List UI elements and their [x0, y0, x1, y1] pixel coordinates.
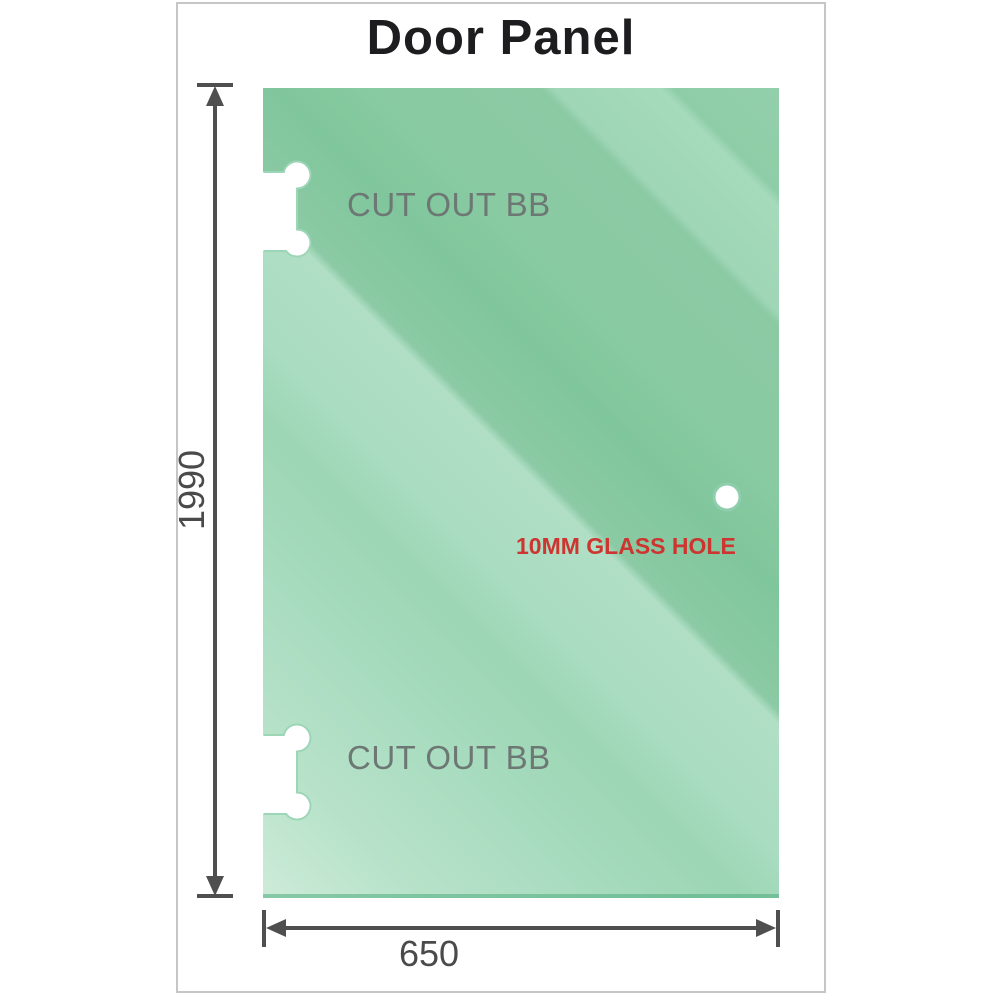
page-title: Door Panel	[176, 14, 826, 63]
cutout-bottom-label: CUT OUT BB	[347, 741, 551, 774]
glass-panel-bottom-edge	[263, 894, 779, 898]
diagram-canvas: Door Panel	[0, 0, 1000, 1000]
glass-hole-label: 10MM GLASS HOLE	[516, 535, 736, 558]
width-dim-label: 650	[399, 936, 459, 972]
height-dim-label: 1990	[174, 450, 210, 530]
cutout-top-label: CUT OUT BB	[347, 188, 551, 221]
